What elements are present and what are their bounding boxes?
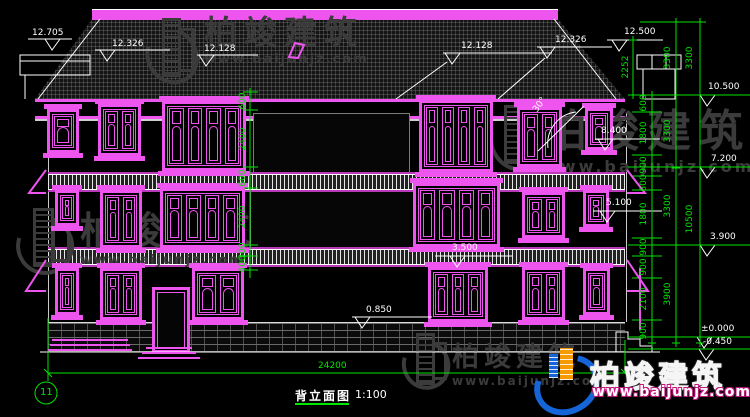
- sheet-number: 11: [40, 387, 53, 398]
- elevation-label: 12.128: [204, 44, 236, 54]
- elevation-label: 12.326: [555, 35, 587, 45]
- brand-logo-icon: [549, 354, 558, 378]
- brand-url: www.baijunjz.com: [592, 384, 750, 400]
- dim-label: 10500: [683, 189, 697, 249]
- elevation-label: 8.400: [601, 126, 627, 136]
- dim-label: 3300: [661, 176, 675, 236]
- dim-label: 400: [236, 234, 250, 294]
- total-width-dim: 24200: [318, 361, 347, 371]
- dim-label: 2252: [619, 37, 633, 97]
- elevation-label: 12.705: [32, 28, 64, 38]
- brand-logo-icon: [560, 348, 573, 380]
- dim-label: 3300: [661, 28, 675, 88]
- elevation-label: 10.500: [708, 82, 740, 92]
- drawing-scale: 1:100: [355, 388, 387, 401]
- title-underline: [295, 403, 349, 405]
- elevation-label: 3.500: [452, 243, 478, 253]
- elevation-label: 12.500: [624, 27, 656, 37]
- elevation-label: -0.450: [703, 337, 732, 347]
- elevation-label: 3.900: [710, 232, 736, 242]
- magenta-details: [26, 43, 648, 358]
- elevation-label: 12.128: [461, 41, 493, 51]
- elevation-label: 12.326: [112, 39, 144, 49]
- elevation-label: ±0.000: [701, 324, 734, 334]
- drawing-title: 背立面图: [295, 387, 351, 404]
- dim-label: 3900: [661, 264, 675, 324]
- elevation-label: 5.100: [606, 198, 632, 208]
- dim-label: 3300: [661, 101, 675, 161]
- elevation-drawing: 柏竣建筑www.baijunjz.com 柏竣建筑www.baijunjz.co…: [0, 0, 750, 417]
- dim-label: 3300: [683, 28, 697, 88]
- elevation-label: 0.850: [366, 305, 392, 315]
- elevation-label: 7.200: [711, 154, 737, 164]
